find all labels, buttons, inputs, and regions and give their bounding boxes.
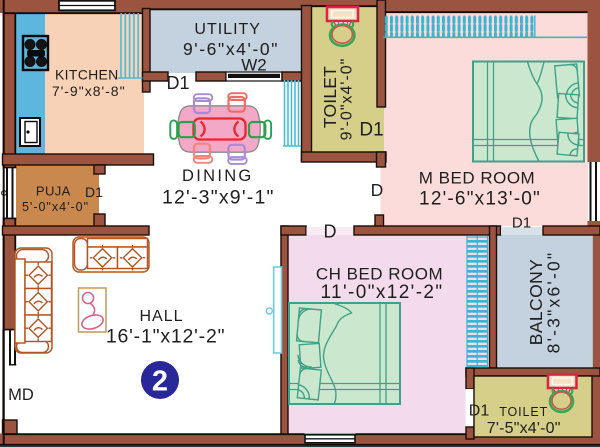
svg-text:12'-6"x13'-0": 12'-6"x13'-0" (419, 189, 541, 210)
svg-text:7'-9"x8'-8": 7'-9"x8'-8" (52, 83, 126, 99)
svg-text:7'-5"x4'-0": 7'-5"x4'-0" (487, 420, 561, 437)
svg-text:TOILET: TOILET (499, 405, 548, 419)
svg-text:PUJA: PUJA (36, 184, 71, 199)
svg-text:D1: D1 (166, 73, 189, 93)
svg-text:11'-0"x12'-2": 11'-0"x12'-2" (320, 282, 443, 303)
svg-text:16'-1"x12'-2": 16'-1"x12'-2" (106, 326, 226, 348)
svg-text:D: D (324, 222, 337, 242)
svg-text:D1: D1 (85, 184, 103, 200)
svg-text:8'-3"x6'-0": 8'-3"x6'-0" (544, 251, 564, 354)
svg-text:CH BED ROOM: CH BED ROOM (316, 265, 443, 284)
svg-text:M BED ROOM: M BED ROOM (419, 169, 535, 188)
svg-text:MD: MD (8, 386, 34, 404)
svg-text:DINING: DINING (182, 167, 254, 185)
svg-text:2: 2 (152, 366, 168, 398)
svg-text:D1: D1 (469, 403, 490, 420)
svg-text:D1: D1 (512, 215, 531, 232)
svg-text:TOILET: TOILET (320, 66, 340, 128)
svg-text:9'-0"x4'-0": 9'-0"x4'-0" (339, 58, 356, 141)
svg-text:D1: D1 (359, 120, 383, 141)
svg-text:HALL: HALL (139, 308, 183, 325)
svg-text:UTILITY: UTILITY (194, 21, 261, 38)
svg-text:W2: W2 (241, 56, 267, 75)
svg-text:5'-0"x4'-0": 5'-0"x4'-0" (22, 200, 89, 214)
svg-text:12'-3"x9'-1": 12'-3"x9'-1" (162, 187, 275, 209)
svg-text:D: D (371, 180, 384, 200)
svg-text:KITCHEN: KITCHEN (55, 67, 119, 83)
